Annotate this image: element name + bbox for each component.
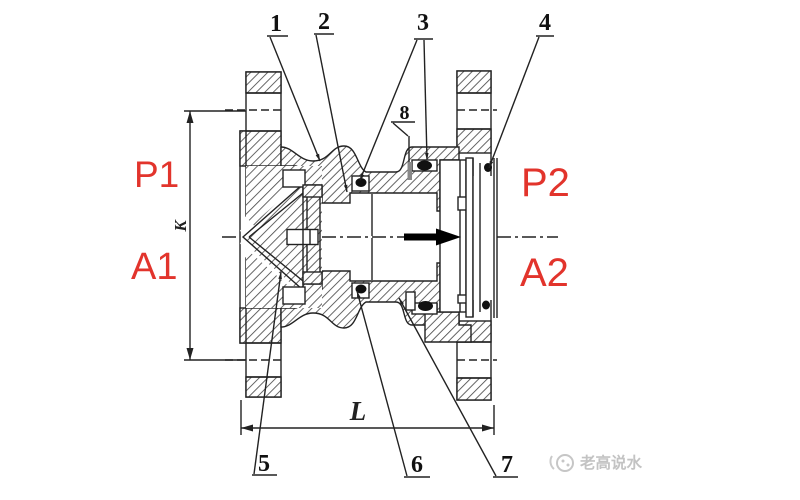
svg-text:8: 8 xyxy=(400,102,410,124)
svg-text:5: 5 xyxy=(258,451,270,477)
svg-text:A2: A2 xyxy=(520,251,569,295)
svg-text:4: 4 xyxy=(539,10,551,36)
svg-text:K: K xyxy=(171,219,190,233)
svg-text:3: 3 xyxy=(417,10,429,36)
svg-text:A1: A1 xyxy=(131,246,177,288)
svg-text:6: 6 xyxy=(411,452,423,478)
svg-text:1: 1 xyxy=(270,11,282,37)
svg-text:P2: P2 xyxy=(521,161,570,205)
svg-text:P1: P1 xyxy=(134,154,179,195)
svg-text:L: L xyxy=(349,396,367,426)
svg-text:老高说水: 老高说水 xyxy=(579,453,643,472)
svg-text:7: 7 xyxy=(501,452,513,478)
svg-text:2: 2 xyxy=(318,9,330,35)
